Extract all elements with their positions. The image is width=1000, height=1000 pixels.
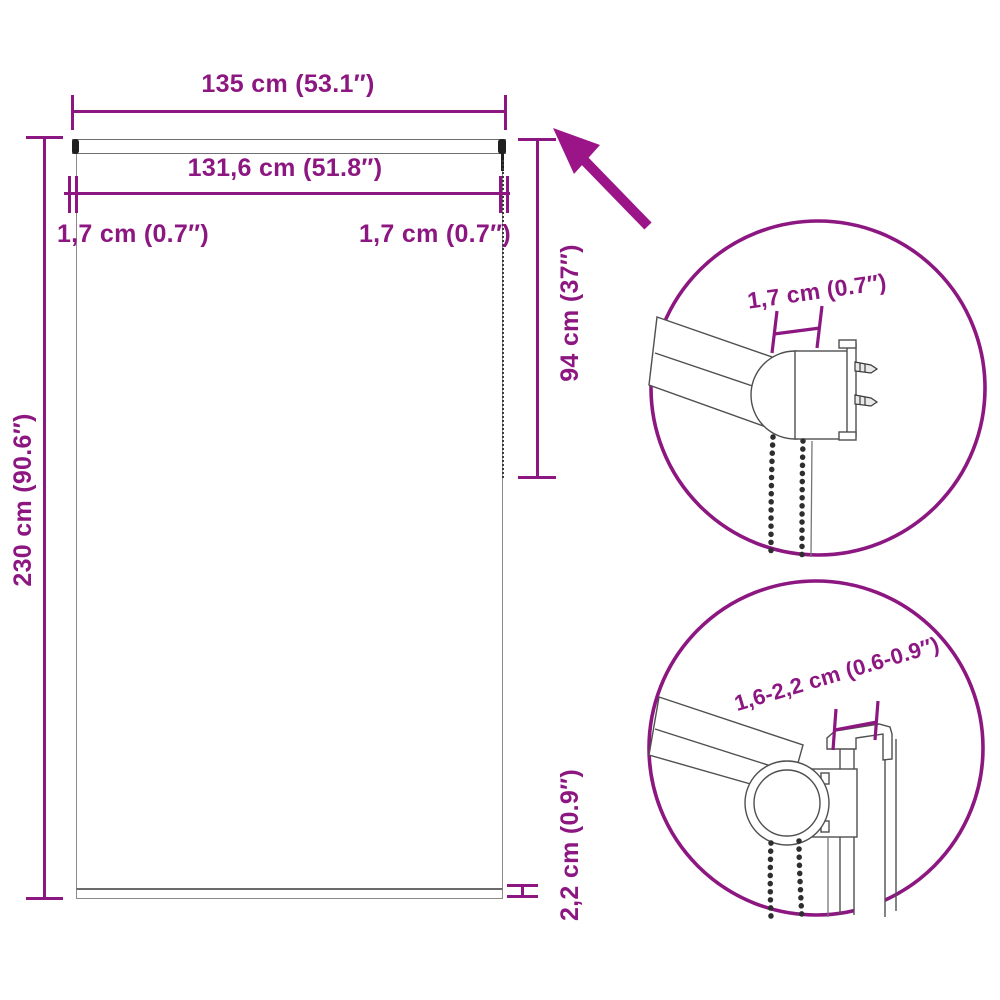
roller-tube bbox=[72, 139, 506, 154]
end-cap-detail bbox=[745, 761, 829, 845]
pull-chain bbox=[502, 160, 504, 478]
dim-height-line bbox=[43, 137, 46, 900]
dim-fabric-width-line bbox=[64, 192, 510, 195]
dim-offset-left-label: 1,7 cm (0.7″) bbox=[23, 220, 243, 248]
dim-chain-tick-bottom bbox=[518, 476, 556, 479]
bracket-plate bbox=[847, 344, 856, 436]
dim-chain-line bbox=[536, 139, 539, 478]
blind-fabric bbox=[76, 153, 503, 892]
dim-total-width-label: 135 cm (53.1″) bbox=[138, 70, 438, 98]
dim-total-width-tick-left bbox=[71, 95, 74, 130]
roller-blind-dimension-diagram: 135 cm (53.1″) 131,6 cm (51.8″) 1,7 cm (… bbox=[0, 0, 1000, 1000]
dim-height-label: 230 cm (90.6″) bbox=[9, 350, 37, 650]
dim-offset-right-label: 1,7 cm (0.7″) bbox=[325, 220, 545, 248]
dim-fabric-width-label: 131,6 cm (51.8″) bbox=[135, 154, 435, 182]
dim-fabric-width-tick bbox=[68, 176, 71, 213]
roller-end-cap-left bbox=[72, 139, 79, 154]
blind-bottom-bar bbox=[76, 888, 503, 899]
dim-fabric-width-tick bbox=[75, 176, 78, 213]
dim-fabric-width-tick bbox=[499, 176, 502, 213]
detail-circle-bracket: 1,7 cm (0.7″) bbox=[643, 213, 993, 563]
dim-bottom-bar-connector bbox=[521, 884, 524, 898]
roller-end-cap-right bbox=[498, 139, 506, 154]
dim-bottom-bar-label: 2,2 cm (0.9″) bbox=[556, 695, 584, 995]
dim-height-tick-top bbox=[26, 136, 63, 139]
dim-total-width-line bbox=[72, 110, 506, 113]
dim-height-tick-bottom bbox=[26, 897, 63, 900]
detail-circle-clamp: 1,6-2,2 cm (0.6-0.9″) bbox=[641, 573, 991, 923]
dim-total-width-tick-right bbox=[504, 95, 507, 130]
dim-fabric-width-tick bbox=[506, 176, 509, 213]
